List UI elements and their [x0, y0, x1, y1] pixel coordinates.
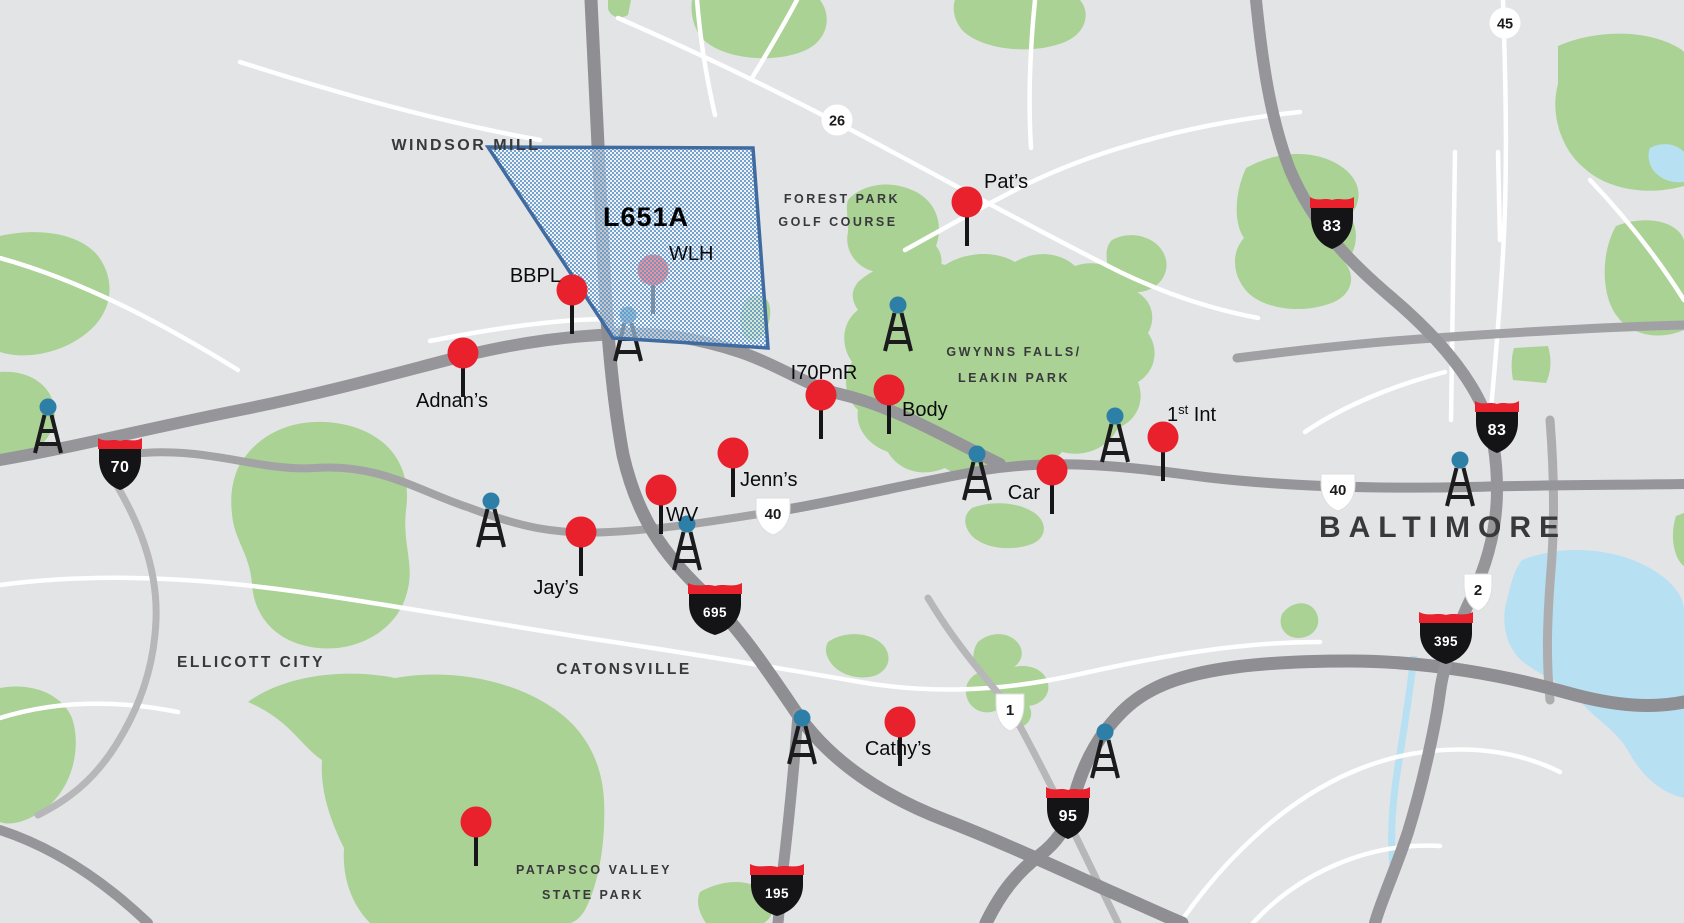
- pin-label-adnans: Adnan’s: [416, 390, 488, 412]
- svg-text:1: 1: [1006, 702, 1014, 719]
- place-label: GOLF COURSE: [778, 215, 897, 229]
- place-label: CATONSVILLE: [556, 661, 691, 678]
- pin-label-jenns: Jenn’s: [740, 469, 797, 491]
- place-label: ELLICOTT CITY: [177, 654, 325, 671]
- pin-label-wlh: WLH: [669, 243, 713, 265]
- place-label: STATE PARK: [542, 888, 644, 902]
- pin-label-wv: WV: [666, 504, 699, 526]
- svg-text:70: 70: [111, 459, 130, 476]
- pin-label-first-int: 1st Int: [1167, 402, 1216, 426]
- svg-text:26: 26: [829, 114, 845, 130]
- svg-text:40: 40: [1330, 482, 1347, 499]
- place-label: FOREST PARK: [784, 192, 900, 206]
- pin-label-car: Car: [1008, 482, 1041, 504]
- map-canvas: WINDSOR MILLFOREST PARKGOLF COURSEGWYNNS…: [0, 0, 1684, 923]
- svg-text:395: 395: [1434, 634, 1458, 649]
- svg-text:195: 195: [765, 886, 789, 901]
- baltimore-cell-map: WINDSOR MILLFOREST PARKGOLF COURSEGWYNNS…: [0, 0, 1684, 923]
- place-label: LEAKIN PARK: [958, 371, 1070, 385]
- place-label: WINDSOR MILL: [391, 137, 540, 154]
- place-label: BALTIMORE: [1319, 511, 1567, 544]
- svg-text:45: 45: [1497, 17, 1513, 33]
- route-marker-45: 45: [1490, 8, 1521, 39]
- pin-label-body: Body: [902, 399, 948, 421]
- coverage-label: L651A: [603, 202, 689, 232]
- pin-label-cathys: Cathy’s: [865, 738, 931, 760]
- svg-text:83: 83: [1323, 218, 1342, 235]
- svg-text:2: 2: [1474, 582, 1482, 599]
- svg-text:40: 40: [765, 506, 782, 523]
- pin-label-i70pnr: I70PnR: [791, 362, 858, 384]
- route-marker-26: 26: [822, 105, 853, 136]
- svg-text:83: 83: [1488, 422, 1507, 439]
- place-label: GWYNNS FALLS/: [946, 345, 1081, 359]
- pin-label-pats: Pat’s: [984, 171, 1028, 193]
- place-label: PATAPSCO VALLEY: [516, 863, 672, 877]
- pin-label-bbpl: BBPL: [510, 265, 561, 287]
- svg-text:95: 95: [1059, 808, 1078, 825]
- pin-label-jays: Jay’s: [533, 577, 578, 599]
- svg-text:695: 695: [703, 605, 727, 620]
